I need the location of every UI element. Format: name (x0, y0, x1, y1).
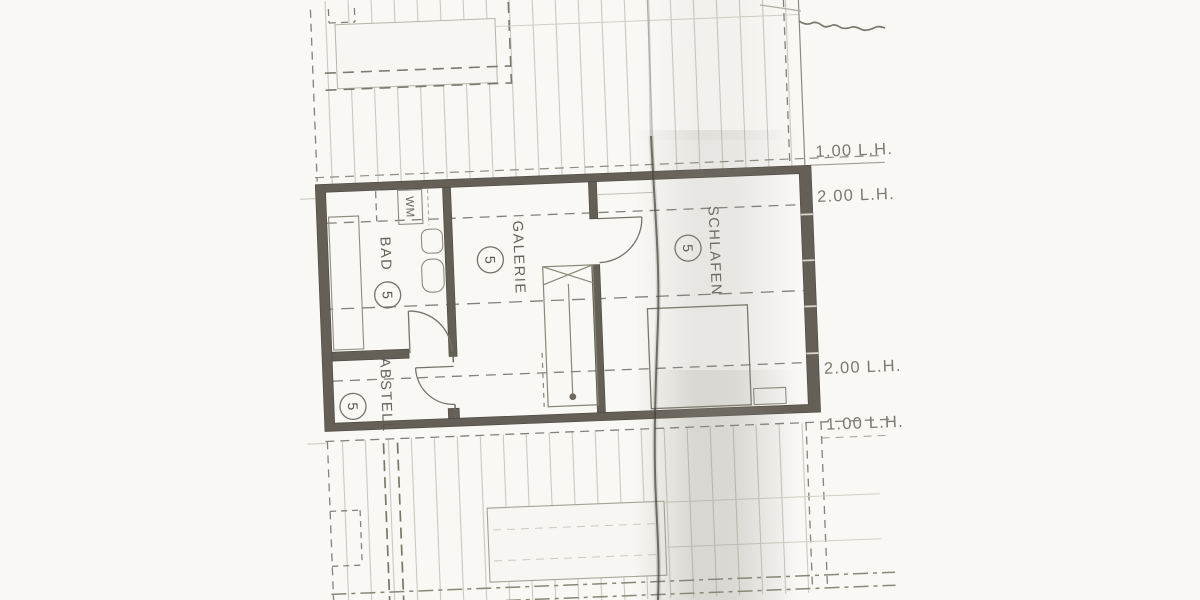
svg-text:5: 5 (482, 256, 498, 265)
scanned-floor-plan: BAD 5 WM GALERIE 5 SCHLAFEN 5 ABSTELL 5 … (0, 0, 1200, 600)
floor-plan-canvas: BAD 5 WM GALERIE 5 SCHLAFEN 5 ABSTELL 5 … (0, 0, 1200, 600)
svg-text:5: 5 (380, 291, 396, 300)
height-annotation-upper: 2.00 L.H. (817, 185, 895, 206)
dormer-outline (335, 18, 497, 88)
room-label-abstell: ABSTELL (376, 357, 395, 432)
appliance-label-wm: WM (403, 196, 416, 218)
partition-galerie-schlafen-stub (588, 182, 597, 219)
height-annotation-lower: 2.00 L.H. (824, 357, 902, 378)
scan-shadow-top (634, 0, 798, 140)
room-label-bad: BAD (376, 236, 393, 271)
doorframe-cap-abstell (448, 408, 459, 418)
height-annotation-top: 1.00 L.H. (815, 140, 893, 161)
svg-text:5: 5 (345, 402, 361, 411)
room-label-galerie: GALERIE (509, 220, 528, 295)
height-annotation-bottom: 1.00 L.H. (826, 413, 904, 434)
margin-tick-lower (307, 443, 325, 444)
margin-tick-upper (300, 199, 316, 200)
